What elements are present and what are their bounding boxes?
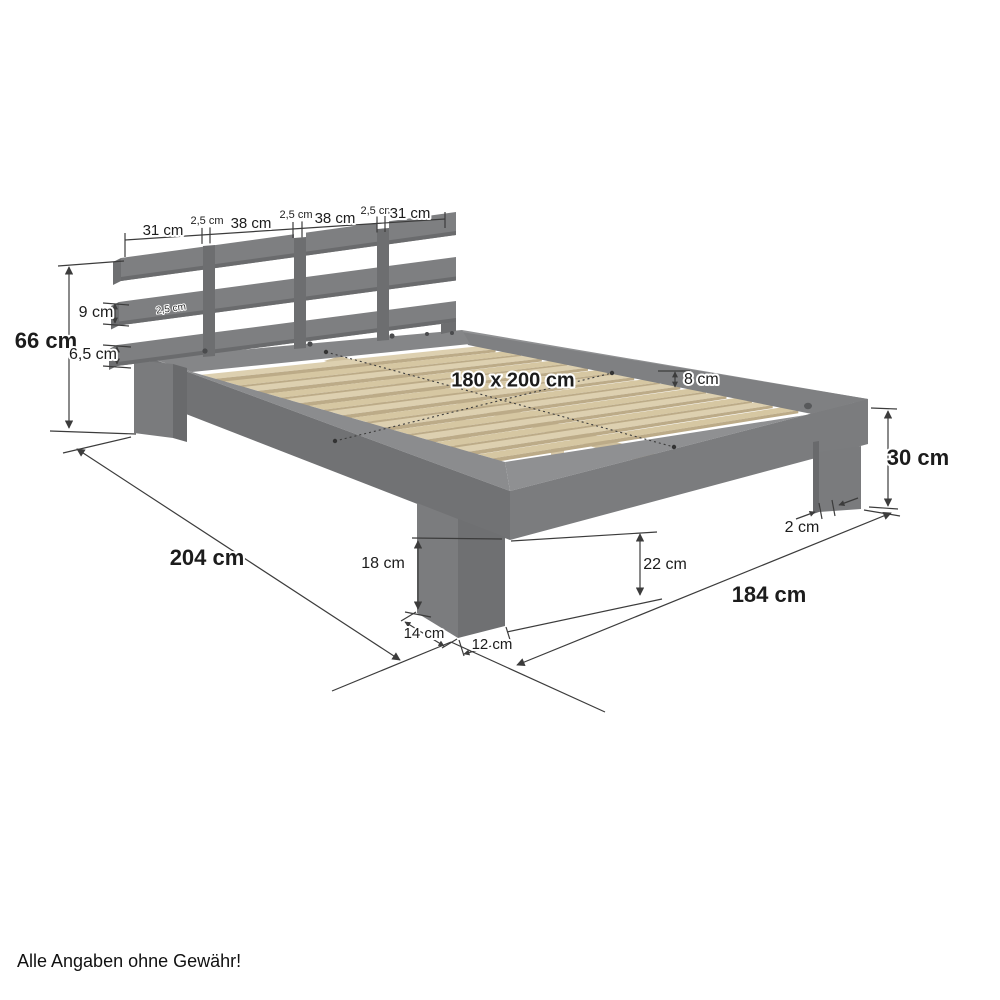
dim-total-length-label: 204 cm [170,545,245,570]
dim-headboard-segment-0-label: 31 cm [143,222,184,239]
dim-front-leg-height-label: 18 cm [361,555,405,572]
disclaimer-text: Alle Angaben ohne Gewähr! [17,951,241,971]
dim-headboard-segment-2-label: 38 cm [231,215,272,232]
dim-headboard-segment-1-label: 2,5 cm [190,215,223,227]
dim-lying-surface-label: 180 x 200 cm [451,369,574,391]
dim-headboard-bottom-slat-label: 6,5 cm [69,346,117,363]
dim-headboard-segment-4-label: 38 cm [315,210,356,227]
bed-frame-illustration [109,212,868,638]
dim-leg-depth-label: 14 cm [404,625,445,642]
dim-total-width-label: 184 cm [732,582,807,607]
dim-leg-corner-offset-label: 2 cm [785,519,820,536]
dim-headboard-height-label: 66 cm [15,328,77,353]
dim-leg-width-label: 12 cm [472,636,513,653]
dim-rail-height-label: 8 cm [684,371,719,388]
screw-dot [307,341,312,346]
rail-hole [804,403,812,409]
dim-headboard-slat-height-label: 9 cm [79,304,114,321]
screw-dot [202,348,207,353]
screw-dot [425,332,429,336]
screw-dot [389,333,394,338]
screw-dot [450,331,454,335]
dim-headboard-segment-3-label: 2,5 cm [279,209,312,221]
dim-headboard-segment-5-label: 2,5 cm [360,205,393,217]
dim-headboard-segment-6-label: 31 cm [390,205,431,222]
dim-foot-end-height-label: 30 cm [887,445,949,470]
bed-dimension-diagram: 31 cm 2,5 cm 38 cm 2,5 cm 38 cm 2,5 cm 3… [0,0,1000,1000]
dim-underbed-clearance-label: 22 cm [643,556,687,573]
